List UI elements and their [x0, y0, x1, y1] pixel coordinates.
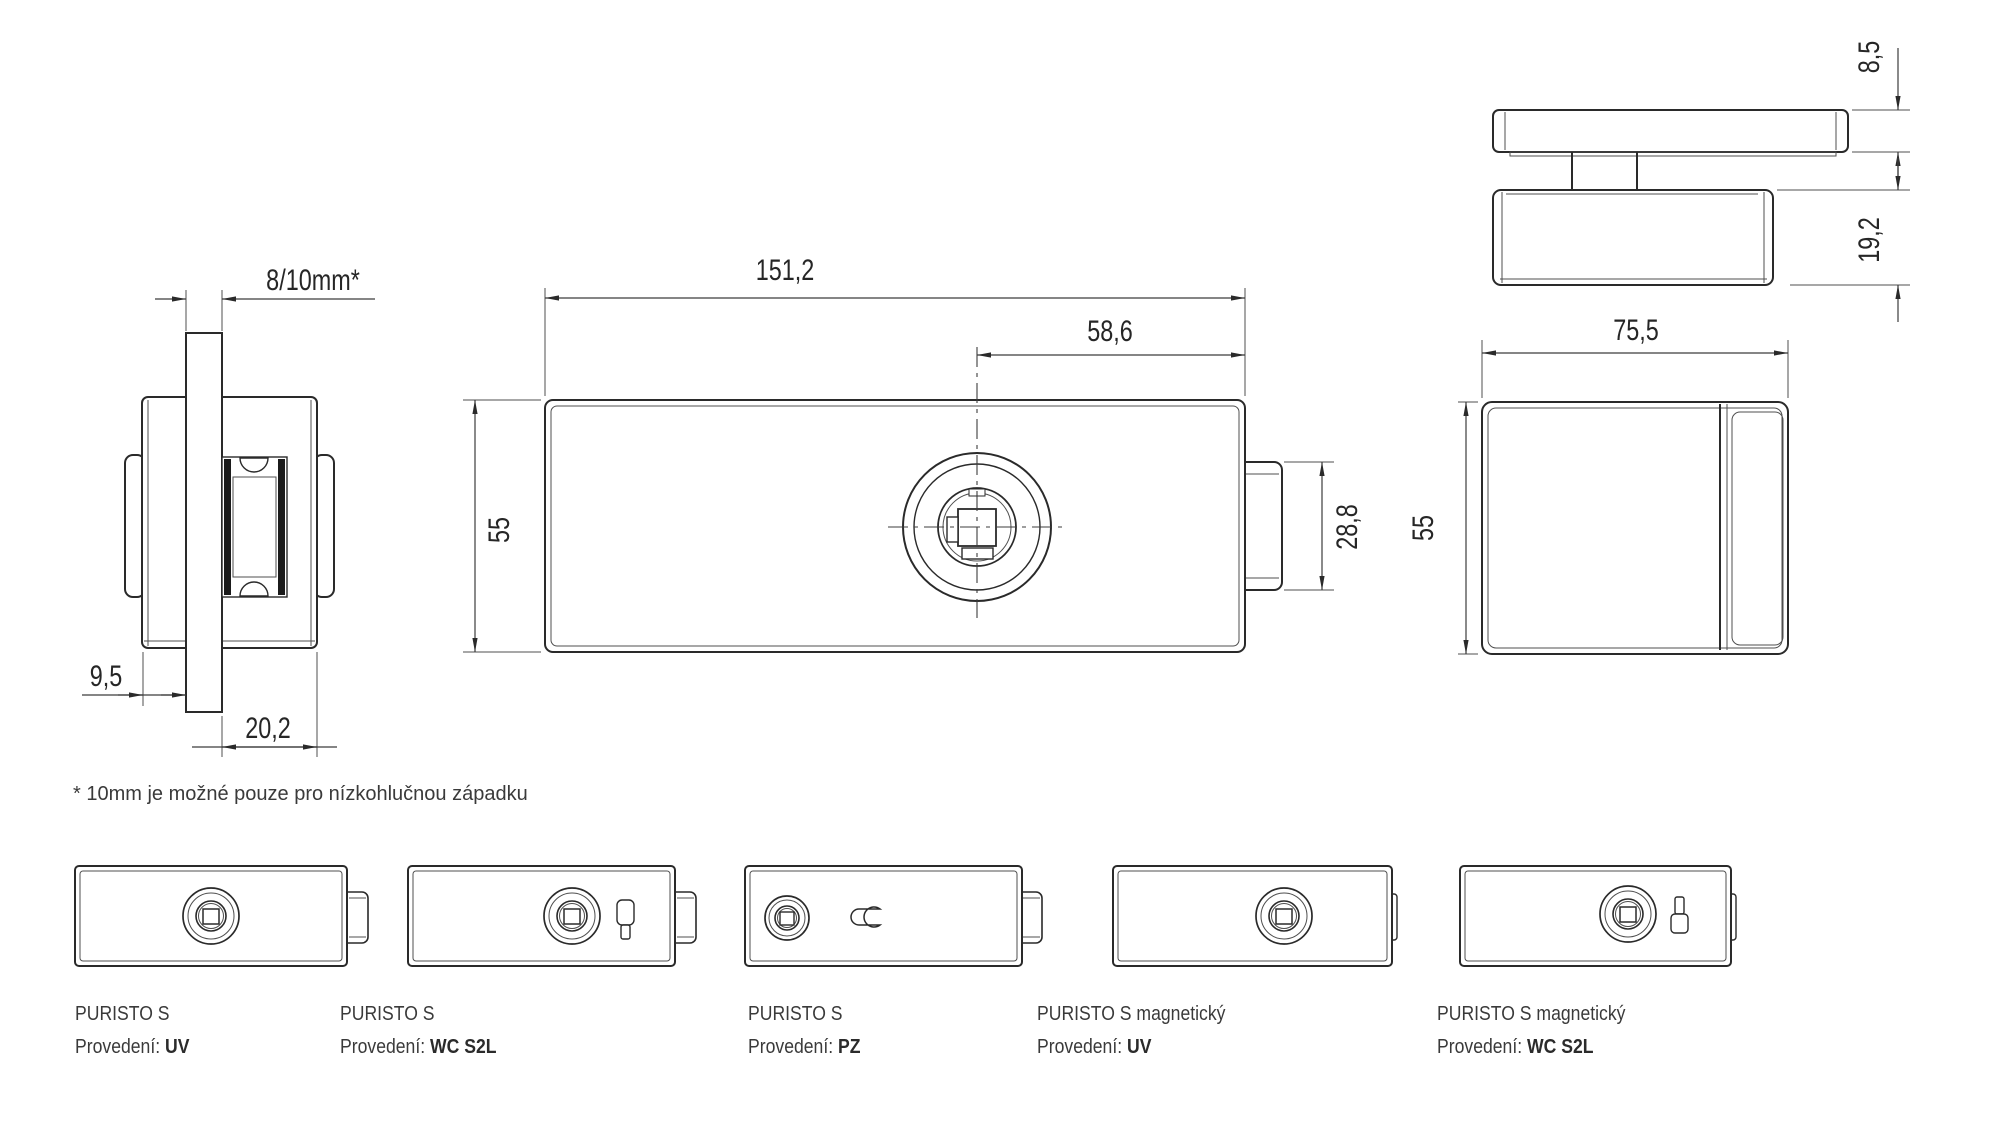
variant-provedeni: Provedení: WC S2L: [1437, 1031, 1625, 1064]
variant-provedeni: Provedení: WC S2L: [340, 1031, 497, 1064]
variant-name: PURISTO S: [748, 998, 861, 1031]
variant-thumbnail-magnetic-uv: [1113, 866, 1397, 966]
dim-side-height: 55: [1407, 515, 1441, 541]
dim-body-offset: 9,5: [90, 660, 123, 694]
variant-thumbnail-pz: [745, 866, 1042, 966]
variant-label: PURISTO S Provedení: WC S2L: [340, 998, 497, 1064]
dim-side-width: 75,5: [1613, 314, 1659, 348]
drawing-linework: [0, 0, 2000, 1144]
dim-front-width: 151,2: [756, 254, 815, 288]
variant-row: [75, 866, 1736, 966]
variant-name: PURISTO S magnetický: [1437, 998, 1625, 1031]
variant-provedeni: Provedení: PZ: [748, 1031, 861, 1064]
variant-name: PURISTO S magnetický: [1037, 998, 1225, 1031]
variant-provedeni: Provedení: UV: [1037, 1031, 1225, 1064]
front-view: [463, 288, 1334, 652]
dim-body-thickness: 19,2: [1853, 217, 1887, 263]
variant-label: PURISTO S magnetický Provedení: UV: [1037, 998, 1225, 1064]
variant-label: PURISTO S Provedení: UV: [75, 998, 189, 1064]
variant-thumbnail-magnetic-wc-s2l: [1460, 866, 1736, 966]
variant-name: PURISTO S: [75, 998, 189, 1031]
dim-cover-thickness: 8,5: [1853, 41, 1887, 74]
technical-drawing-page: 8/10mm* 9,5 20,2 151,2 58,6 55 28,8 8,5 …: [0, 0, 2000, 1144]
variant-provedeni: Provedení: UV: [75, 1031, 189, 1064]
variant-label: PURISTO S Provedení: PZ: [748, 998, 861, 1064]
dim-glass-thickness: 8/10mm*: [266, 264, 360, 298]
side-view: [1458, 340, 1788, 654]
edge-section-view: [1493, 48, 1910, 322]
glass-pane: [186, 333, 222, 712]
side-section-view: [82, 290, 375, 757]
dim-latch-height: 28,8: [1331, 504, 1365, 550]
dim-body-depth: 20,2: [245, 712, 291, 746]
footnote: * 10mm je možné pouze pro nízkohlučnou z…: [73, 783, 528, 806]
variant-thumbnail-uv: [75, 866, 368, 966]
variant-label: PURISTO S magnetický Provedení: WC S2L: [1437, 998, 1625, 1064]
latch-mechanism: [222, 457, 287, 597]
dim-spindle-offset: 58,6: [1087, 315, 1133, 349]
variant-name: PURISTO S: [340, 998, 497, 1031]
variant-thumbnail-wc-s2l: [408, 866, 696, 966]
dim-front-height: 55: [483, 517, 517, 543]
